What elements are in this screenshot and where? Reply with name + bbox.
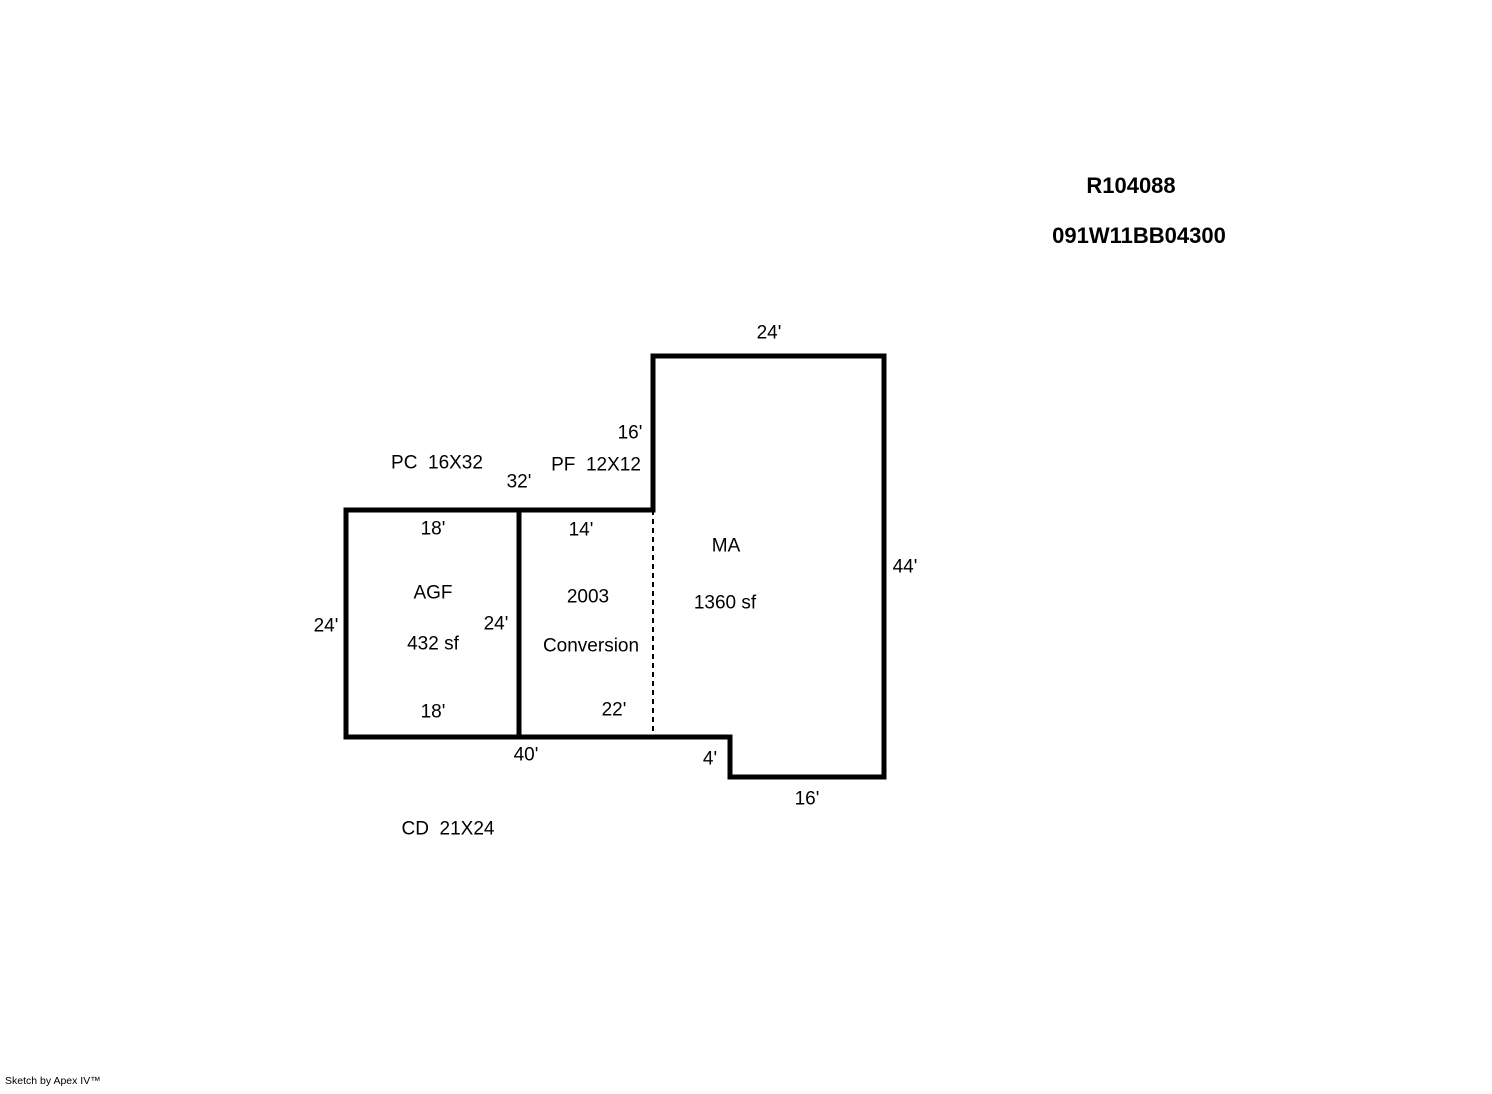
note-pc: PC 16X32 [391,454,483,475]
dim-agf-left-height: 24' [314,617,339,638]
dim-conv-bottom-width: 22' [602,701,627,722]
appraisal-sketch-page: R104088 091W11BB04300 24' 16' PC 16X32 P… [0,0,1492,1094]
dim-bottom-right-width: 16' [795,790,820,811]
floorplan-sketch [0,0,1492,1094]
note-conversion-year: 2003 [567,588,609,609]
area-sqft-agf: 432 sf [407,635,459,656]
note-cd: CD 21X24 [402,820,495,841]
dim-agf-right-height: 24' [484,615,509,636]
area-label-agf: AGF [413,584,452,605]
note-pf: PF 12X12 [551,456,641,477]
note-conversion: Conversion [543,637,639,658]
dim-top-total-width: 32' [507,473,532,494]
area-label-ma: MA [712,537,741,558]
dim-notch-height: 4' [703,750,717,771]
dim-agf-bottom-width: 18' [421,703,446,724]
dim-agf-top-width: 18' [421,520,446,541]
dim-ma-top-width: 24' [757,324,782,345]
dim-ma-upper-left-height: 16' [618,424,643,445]
dim-ma-right-height: 44' [893,558,918,579]
dim-conv-top-width: 14' [569,521,594,542]
area-sqft-ma: 1360 sf [694,594,756,615]
apex-credit: Sketch by Apex IV™ [5,1076,101,1088]
dim-bottom-total-width: 40' [514,746,539,767]
